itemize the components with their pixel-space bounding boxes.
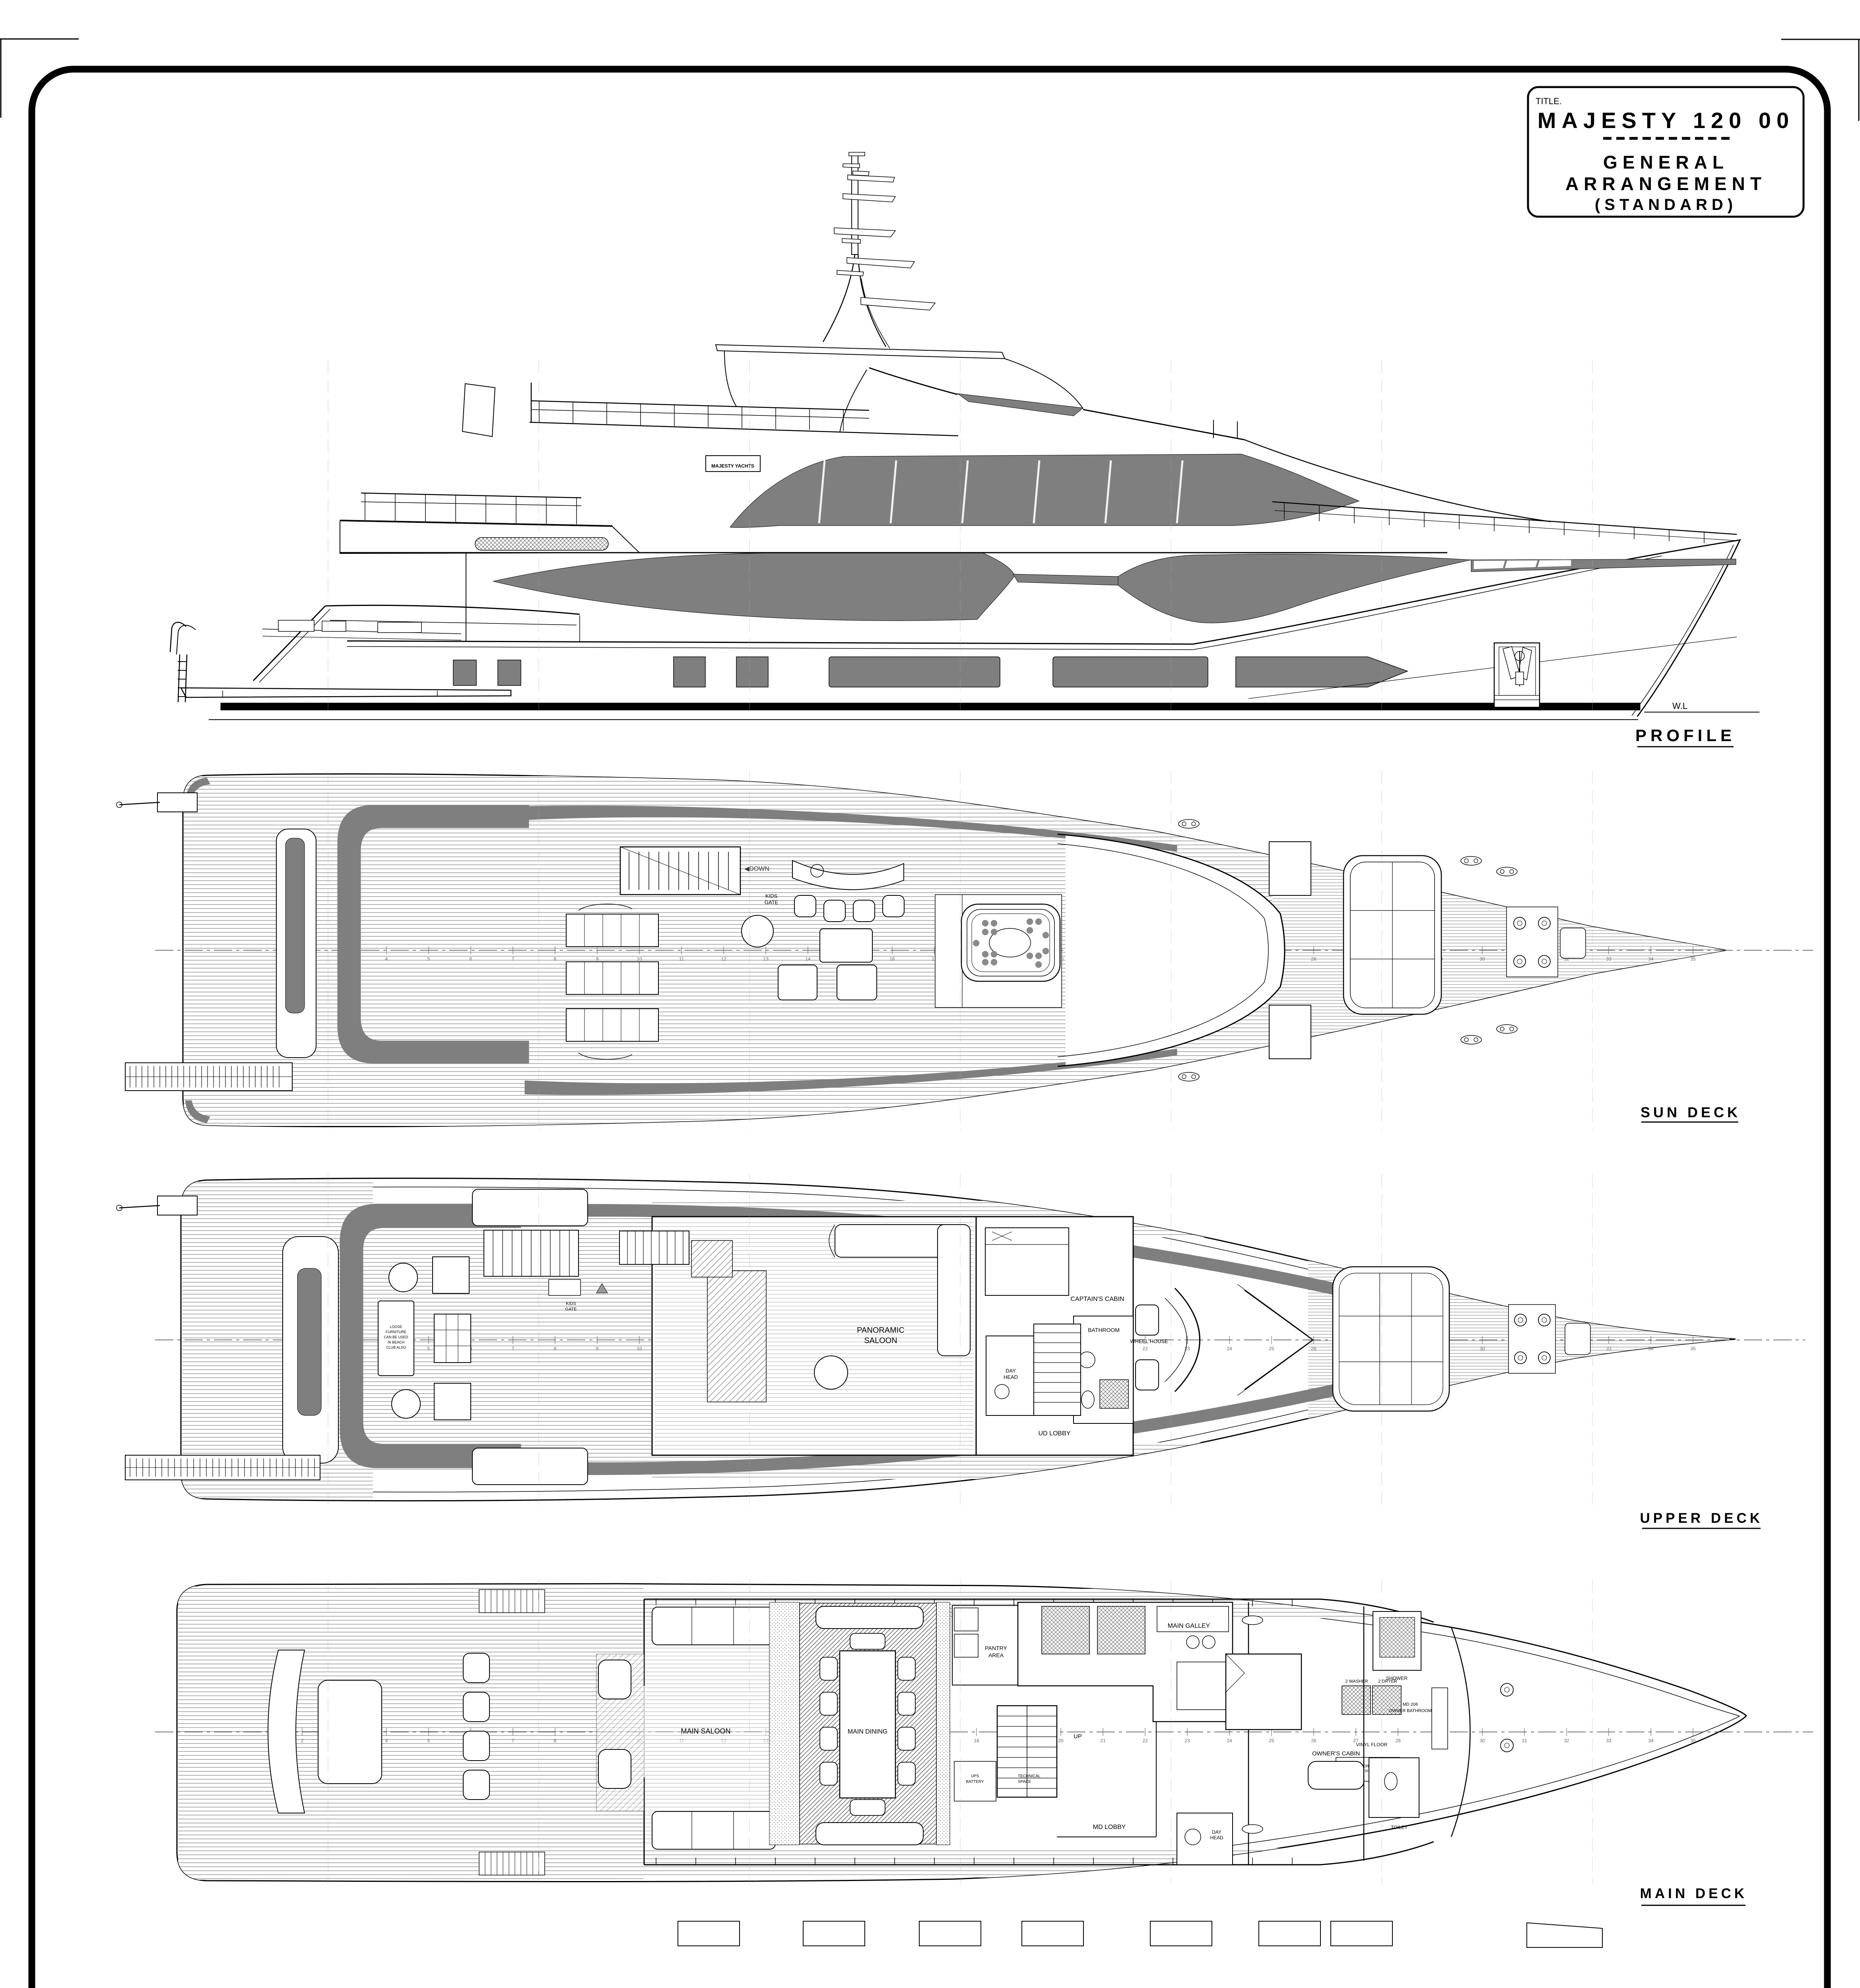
svg-text:34: 34 [1648, 956, 1654, 962]
svg-text:9: 9 [596, 956, 599, 962]
svg-text:MAIN DECK: MAIN DECK [1640, 1886, 1747, 1901]
svg-text:5: 5 [427, 1346, 430, 1351]
svg-text:26: 26 [1311, 1738, 1316, 1743]
svg-text:4: 4 [385, 1738, 388, 1743]
svg-text:33: 33 [1606, 956, 1611, 962]
svg-text:DAY: DAY [1212, 1829, 1221, 1835]
svg-text:SUN DECK: SUN DECK [1641, 1104, 1741, 1120]
svg-text:SPACE: SPACE [1018, 1780, 1031, 1784]
svg-text:UD LOBBY: UD LOBBY [1039, 1430, 1071, 1437]
svg-text:AREA: AREA [988, 1652, 1004, 1658]
svg-text:33: 33 [1606, 1346, 1611, 1351]
svg-text:13: 13 [763, 956, 769, 962]
svg-text:18: 18 [974, 1738, 979, 1743]
svg-text:MD 206: MD 206 [1403, 1702, 1418, 1707]
svg-text:20: 20 [1058, 1738, 1064, 1743]
svg-text:MAIN DINING: MAIN DINING [848, 1728, 887, 1735]
svg-text:23: 23 [1184, 1738, 1190, 1743]
svg-text:31: 31 [1522, 1738, 1527, 1743]
svg-text:FURNITURE: FURNITURE [386, 1330, 406, 1334]
svg-text:7: 7 [512, 1346, 515, 1351]
svg-text:30: 30 [1479, 1738, 1485, 1743]
svg-text:KIDS: KIDS [765, 893, 778, 899]
svg-text:OWNER BATHROOM: OWNER BATHROOM [1389, 1708, 1432, 1713]
svg-text:35: 35 [1690, 956, 1696, 962]
svg-text:BATTERY: BATTERY [966, 1780, 984, 1784]
svg-text:VINYL FLOOR: VINYL FLOOR [1356, 1742, 1388, 1747]
svg-text:PANORAMIC: PANORAMIC [857, 1326, 905, 1335]
svg-text:34: 34 [1648, 1346, 1654, 1351]
svg-text:CAN BE USED: CAN BE USED [384, 1335, 408, 1339]
svg-text:HEAD: HEAD [1210, 1835, 1223, 1840]
svg-text:CLUB ALSO: CLUB ALSO [386, 1345, 406, 1349]
svg-text:5: 5 [427, 1738, 430, 1743]
svg-text:CAPTAIN'S CABIN: CAPTAIN'S CABIN [1070, 1296, 1124, 1303]
svg-text:BATHROOM: BATHROOM [1088, 1327, 1120, 1333]
svg-text:9: 9 [596, 1346, 599, 1351]
svg-text:PROFILE: PROFILE [1635, 726, 1736, 745]
svg-text:28: 28 [1395, 1738, 1401, 1743]
svg-text:WHEEL HOUSE: WHEEL HOUSE [1130, 1338, 1168, 1344]
svg-text:34: 34 [1648, 1738, 1654, 1743]
svg-text:SALOON: SALOON [864, 1336, 897, 1345]
svg-text:8: 8 [554, 1346, 557, 1351]
svg-text:26: 26 [1311, 956, 1316, 962]
svg-text:GENERAL: GENERAL [1603, 152, 1729, 173]
svg-text:UPS: UPS [971, 1774, 979, 1778]
svg-text:4: 4 [385, 956, 388, 962]
svg-text:SHOWER: SHOWER [1386, 1675, 1408, 1681]
svg-text:MAJESTY 120 00: MAJESTY 120 00 [1538, 108, 1794, 133]
svg-text:UP: UP [1074, 1733, 1082, 1740]
svg-text:5: 5 [427, 956, 430, 962]
svg-text:(STANDARD): (STANDARD) [1595, 196, 1737, 214]
svg-text:21: 21 [1100, 1738, 1106, 1743]
svg-text:PANTRY: PANTRY [985, 1645, 1007, 1651]
svg-text:HEAD: HEAD [1004, 1374, 1018, 1380]
svg-text:GATE: GATE [765, 899, 779, 905]
svg-text:8: 8 [554, 956, 557, 962]
svg-text:MAJESTY YACHTS: MAJESTY YACHTS [711, 463, 754, 469]
svg-text:LOOSE: LOOSE [390, 1325, 402, 1329]
svg-text:IN BEACH: IN BEACH [388, 1340, 405, 1344]
svg-text:TECHNICAL: TECHNICAL [1018, 1774, 1041, 1778]
svg-text:16: 16 [889, 956, 895, 962]
svg-text:DAY: DAY [1006, 1368, 1016, 1374]
svg-text:◀DOWN: ◀DOWN [744, 866, 769, 872]
svg-text:2: 2 [301, 1738, 304, 1743]
svg-text:14: 14 [805, 956, 811, 962]
svg-text:35: 35 [1690, 1346, 1696, 1351]
svg-text:25: 25 [1269, 1738, 1274, 1743]
svg-text:ARRANGEMENT: ARRANGEMENT [1565, 173, 1767, 194]
svg-text:11: 11 [679, 956, 684, 962]
svg-text:W.L: W.L [1672, 701, 1687, 711]
svg-text:7: 7 [512, 956, 515, 962]
svg-text:7: 7 [512, 1738, 515, 1743]
svg-text:10: 10 [637, 1346, 642, 1351]
svg-text:OWNER'S CABIN: OWNER'S CABIN [1312, 1750, 1360, 1757]
svg-text:6: 6 [470, 956, 472, 962]
svg-text:32: 32 [1564, 1738, 1569, 1743]
svg-text:UPPER DECK: UPPER DECK [1640, 1510, 1763, 1526]
svg-text:12: 12 [721, 956, 726, 962]
svg-text:TOILET: TOILET [1391, 1825, 1408, 1830]
svg-text:30: 30 [1479, 1346, 1485, 1351]
svg-text:33: 33 [1606, 1738, 1611, 1743]
svg-text:10: 10 [637, 956, 642, 962]
svg-text:MD LOBBY: MD LOBBY [1093, 1824, 1126, 1831]
svg-text:35: 35 [1690, 1738, 1696, 1743]
svg-text:8: 8 [554, 1738, 557, 1743]
svg-text:2 WASHER: 2 WASHER [1345, 1679, 1368, 1684]
svg-text:GATE: GATE [565, 1307, 577, 1312]
svg-text:22: 22 [1142, 1738, 1148, 1743]
svg-text:TITLE.: TITLE. [1536, 96, 1562, 106]
svg-text:22: 22 [1142, 1346, 1148, 1351]
svg-text:24: 24 [1227, 1738, 1232, 1743]
svg-text:MAIN GALLEY: MAIN GALLEY [1168, 1623, 1210, 1629]
svg-text:30: 30 [1479, 956, 1485, 962]
svg-text:MAIN SALOON: MAIN SALOON [681, 1727, 730, 1735]
svg-text:24: 24 [1227, 1346, 1232, 1351]
svg-text:26: 26 [1311, 1346, 1316, 1351]
svg-text:KIDS: KIDS [566, 1301, 576, 1306]
svg-text:25: 25 [1269, 1346, 1274, 1351]
